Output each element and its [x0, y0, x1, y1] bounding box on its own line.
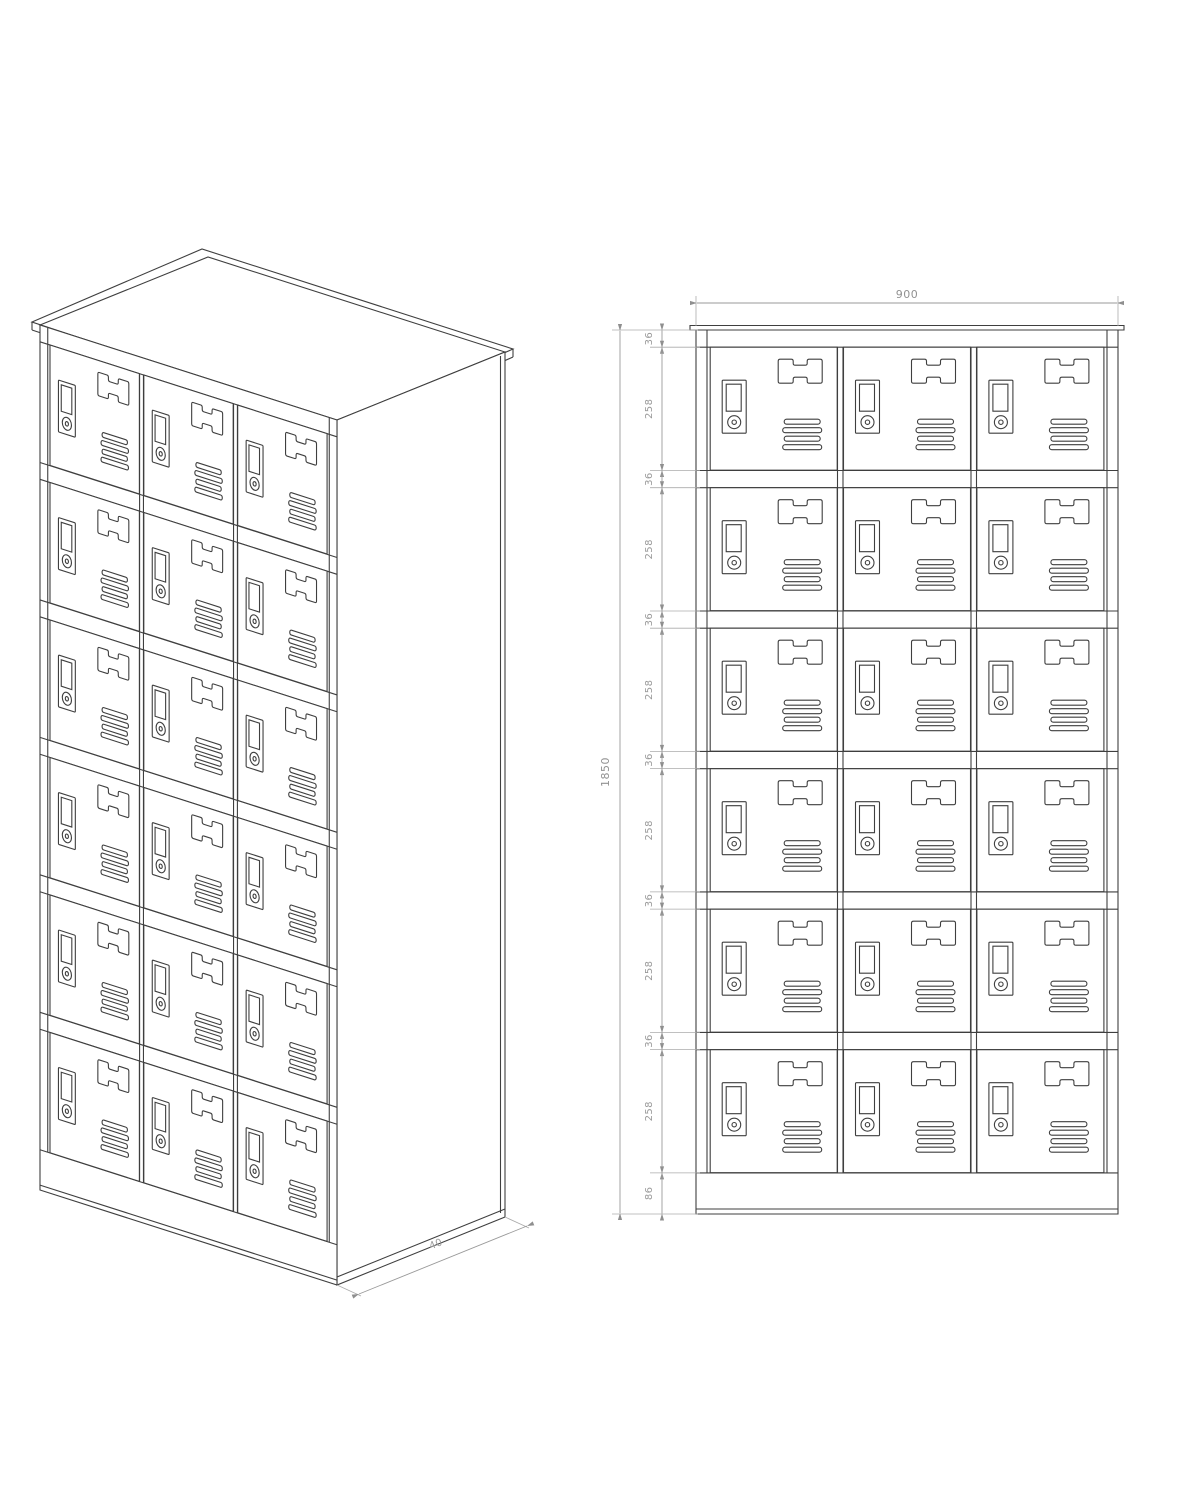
- chain-label: 258: [644, 399, 655, 419]
- cabinet-side-panel: [337, 352, 505, 1285]
- chain-label: 258: [644, 539, 655, 559]
- chain-label: 36: [644, 613, 655, 627]
- chain-label: 36: [644, 753, 655, 767]
- chain-label: 36: [644, 472, 655, 486]
- chain-label: 36: [644, 1034, 655, 1048]
- front-face: [696, 330, 1118, 1214]
- front-view: 900 1850: [599, 288, 1124, 1214]
- chain-label: 258: [644, 961, 655, 981]
- chain-label: 258: [644, 680, 655, 700]
- chain-label: 36: [644, 332, 655, 346]
- chain-label: 258: [644, 1101, 655, 1121]
- overall-height-dimension: 1850: [599, 330, 698, 1214]
- width-dimension-label: 900: [896, 288, 919, 301]
- locker-drawing-svg: 40 900 1850: [0, 0, 1181, 1500]
- chain-label: 86: [644, 1187, 655, 1201]
- technical-drawing-canvas: 40 900 1850: [0, 0, 1181, 1500]
- chain-label: 258: [644, 820, 655, 840]
- front-top-cap: [690, 326, 1124, 331]
- chain-label: 36: [644, 894, 655, 908]
- width-dimension: 900: [696, 288, 1118, 326]
- height-dimension-chain: 36 258 36 258 36 258 36 258 36 258 36 25…: [644, 331, 700, 1214]
- isometric-view: 40: [32, 249, 529, 1296]
- overall-height-label: 1850: [599, 757, 612, 787]
- isometric-front-face: [40, 325, 337, 1285]
